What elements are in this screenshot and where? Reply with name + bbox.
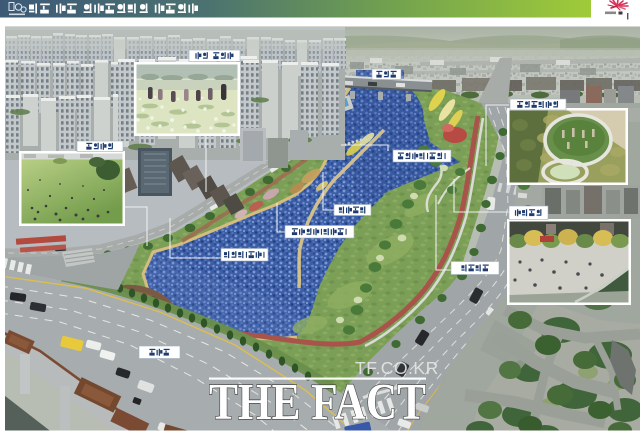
svg-text:THE FACT: THE FACT [209, 374, 426, 431]
